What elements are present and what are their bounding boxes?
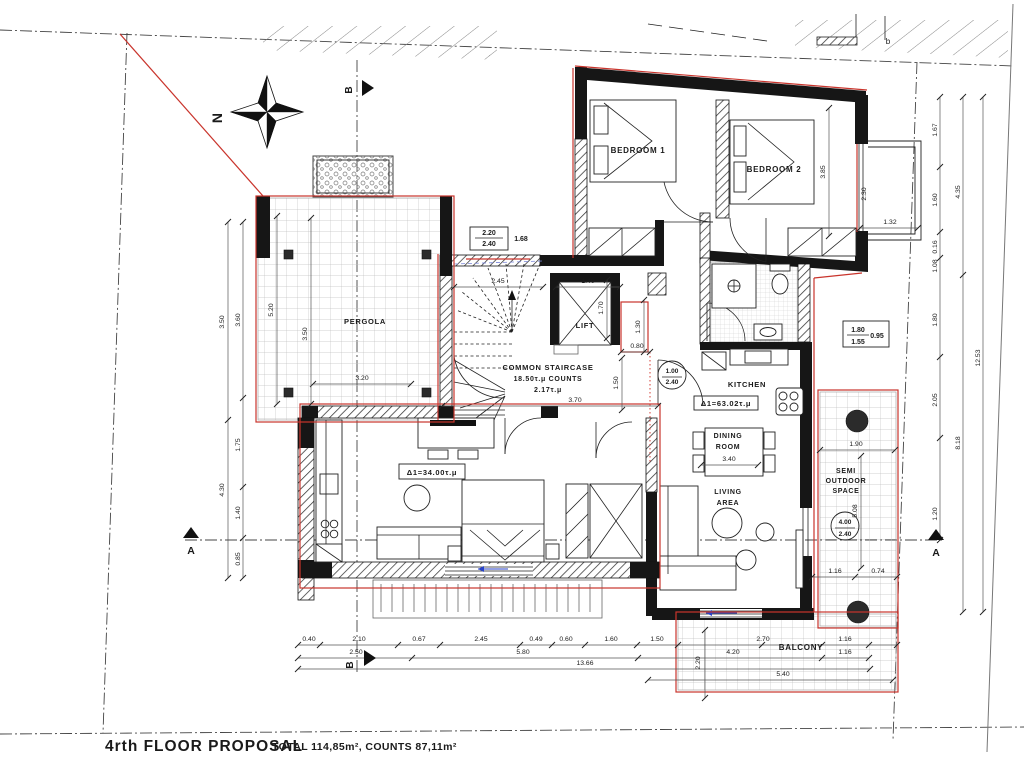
dim-value: 4.35 — [955, 185, 962, 198]
dim-value: 3.40 — [722, 456, 735, 463]
label-apartment1_area: Δ1=63.02τ.μ — [701, 399, 751, 408]
dim-value: 1.70 — [598, 301, 605, 314]
dim-value: 2.20 — [695, 656, 702, 669]
dim-value: 2.45 — [491, 278, 504, 285]
dim-value: 5.20 — [268, 303, 275, 316]
section-b-arrow — [362, 80, 374, 96]
label-lift: LIFT — [576, 321, 595, 330]
label-kitchen: KITCHEN — [728, 380, 766, 389]
balcony-floor — [678, 614, 896, 690]
label-door_hall_w: 1.00 — [666, 368, 679, 375]
dim-value: 1.16 — [838, 649, 851, 656]
dim-value: 5.80 — [516, 649, 529, 656]
dim-value: 0.60 — [559, 636, 572, 643]
dim-value: 0.85 — [235, 552, 242, 565]
stair-winder — [454, 382, 505, 392]
round-table — [404, 485, 430, 511]
studio-living-divider — [646, 492, 657, 616]
living-right-wall — [800, 420, 812, 508]
hob — [776, 388, 803, 415]
dim-value: 3.85 — [820, 165, 827, 178]
pergola-post — [422, 388, 431, 397]
section-b-label: B — [344, 86, 355, 93]
dim-value: 5.08 — [852, 504, 859, 517]
pillow — [734, 162, 746, 192]
north-label: N — [209, 113, 225, 123]
dim-value: 8.18 — [955, 436, 962, 449]
label-win_top_h: 2.40 — [482, 241, 496, 248]
label-semi1: SEMI — [836, 468, 856, 475]
dim-value: 1.60 — [604, 636, 617, 643]
label-bedroom1: BEDROOM 1 — [611, 146, 666, 155]
dim-value: 12.53 — [975, 349, 982, 366]
survey-dashes — [648, 24, 767, 41]
bath-right-wall — [798, 264, 810, 342]
label-semi2: OUTDOOR — [826, 478, 867, 485]
dim-value: 3.60 — [235, 313, 242, 326]
dim-value: 1.16 — [838, 636, 851, 643]
dim-value: 1.32 — [883, 219, 896, 226]
label-staircase2: 18.50τ.μ COUNTS — [514, 376, 583, 383]
stair-top-wall — [540, 255, 662, 266]
sink-counter — [754, 324, 782, 340]
dim-value: 1.08 — [932, 259, 939, 272]
hall-wall — [648, 273, 666, 295]
dim-value: 1.40 — [581, 278, 594, 285]
stair-rail — [454, 356, 504, 398]
nightstand — [448, 546, 461, 561]
label-living1: LIVING — [714, 489, 742, 496]
label-win_top_w: 2.20 — [482, 230, 496, 237]
dim-value: 13.66 — [576, 660, 593, 667]
dim-value: 1.90 — [849, 441, 862, 448]
dim-value: 2.70 — [756, 636, 769, 643]
dim-value: 0.40 — [302, 636, 315, 643]
dim-value: 0.74 — [871, 568, 884, 575]
label-dining1: DINING — [714, 433, 743, 440]
floor-plan-drawing: BEDROOM 1BEDROOM 2LIFTCOMMON STAIRCASE18… — [0, 0, 1024, 762]
sofa-chaise — [660, 556, 736, 590]
label-door_semi_h: 2.40 — [839, 531, 852, 538]
label-dining2: ROOM — [716, 444, 741, 451]
label-win_right_w: 1.80 — [851, 327, 865, 334]
door-arc-studio — [505, 418, 541, 454]
plot-boundary-left — [103, 33, 127, 733]
wall-cap — [302, 562, 332, 578]
dim-value: 2.50 — [349, 649, 362, 656]
bedroom2-right-wall — [855, 95, 868, 144]
studio-shelf — [430, 420, 476, 426]
wc-bowl — [772, 274, 788, 294]
section-a-arrow — [928, 529, 944, 540]
stair-ray — [462, 292, 512, 332]
pergola-floor — [258, 198, 452, 420]
dim-value: 1.40 — [235, 506, 242, 519]
lift-wall — [611, 273, 620, 345]
dim-value: 2.05 — [932, 393, 939, 406]
label-door_hall_h: 2.40 — [666, 379, 679, 386]
bedroom1-left-wall-ins — [575, 139, 587, 258]
tv-unit — [796, 530, 803, 588]
nightstand — [546, 544, 559, 559]
plot-boundary-bottom — [0, 727, 1024, 734]
label-door_semi_w: 4.00 — [839, 519, 852, 526]
floor-plan-sheet: BEDROOM 1BEDROOM 2LIFTCOMMON STAIRCASE18… — [0, 0, 1024, 762]
wall-cap — [541, 406, 558, 418]
label-studio_area: Δ1=34.00τ.μ — [407, 468, 457, 477]
line — [814, 273, 862, 278]
label-bedroom2: BEDROOM 2 — [747, 165, 802, 174]
label-living2: AREA — [717, 500, 740, 507]
dim-value: 3.20 — [355, 375, 368, 382]
dim-value: 1.80 — [932, 313, 939, 326]
bedroom1-left-wall — [575, 67, 587, 139]
chair — [428, 450, 448, 459]
plot-boundary-right — [987, 4, 1013, 752]
stair-left-wall — [440, 266, 452, 418]
label-win_top_len: 1.68 — [514, 236, 528, 243]
setback-line-right — [893, 62, 917, 740]
pergola-post — [284, 250, 293, 259]
stair-ray — [473, 278, 512, 332]
label-semi3: SPACE — [832, 488, 859, 495]
wall-cap — [630, 562, 662, 578]
section-b-arrow — [364, 650, 376, 666]
dim-value: 2.45 — [474, 636, 487, 643]
dim-value: 1.75 — [235, 438, 242, 451]
dim-value: 0.49 — [529, 636, 542, 643]
pergola-corner-wall — [440, 196, 452, 276]
label-staircase3: 2.17τ.μ — [534, 387, 562, 394]
label-staircase1: COMMON STAIRCASE — [502, 363, 593, 372]
chair — [764, 455, 775, 472]
pergola-post — [284, 388, 293, 397]
section-a-arrow — [183, 527, 199, 538]
stair-winder — [454, 360, 505, 390]
dim-value: 0.67 — [412, 636, 425, 643]
bedroom-top-wall — [575, 67, 866, 103]
dim-value: 1.20 — [932, 507, 939, 520]
dim-value: 0.80 — [630, 343, 643, 350]
label-pergola: PERGOLA — [344, 317, 386, 326]
coffee-table — [712, 508, 742, 538]
dim-value: 3.50 — [219, 315, 226, 328]
planter — [313, 156, 393, 197]
door-arc-apartment — [596, 422, 632, 458]
label-win_right_h: 1.55 — [851, 339, 865, 346]
lift-step — [554, 345, 578, 354]
dim-value: 2.10 — [352, 636, 365, 643]
wc-tank — [770, 264, 790, 271]
dim-value: 5.40 — [776, 671, 789, 678]
studio-slider-gap — [445, 564, 533, 576]
pillow — [594, 146, 608, 174]
stair-ray — [512, 264, 540, 332]
studio-top-wall — [302, 406, 452, 418]
pergola-post — [422, 250, 431, 259]
wall-cap — [302, 406, 318, 418]
sheet-subtitle: TOTAL 114,85m², COUNTS 87,11m² — [272, 741, 457, 753]
label-win_right_len: 0.95 — [870, 333, 884, 340]
chair — [764, 432, 775, 449]
bath-left-wall — [700, 258, 710, 344]
section-a-label: A — [187, 545, 195, 557]
pillow — [594, 106, 608, 134]
pillow — [734, 126, 746, 156]
dim-value: 0.16 — [932, 240, 939, 253]
dim-value: 3.50 — [302, 327, 309, 340]
bedroom-partition — [716, 100, 729, 218]
dim-value: 3.70 — [568, 397, 581, 404]
chair — [693, 432, 704, 449]
section-b-label: B — [345, 661, 356, 668]
stair-arrow-head — [508, 290, 516, 300]
stair-winder — [494, 396, 505, 420]
studio-bed — [462, 480, 544, 562]
side-table — [736, 550, 756, 570]
dim-value: 1.16 — [828, 568, 841, 575]
pergola-corner-wall — [256, 196, 270, 258]
dim-value: 1.67 — [932, 123, 939, 136]
dim-value: 1.60 — [932, 193, 939, 206]
label-balcony: BALCONY — [779, 643, 823, 652]
dim-value: 4.20 — [726, 649, 739, 656]
dim-value: 1.30 — [635, 320, 642, 333]
dim-value: 2.30 — [861, 187, 868, 200]
section-a-label: A — [932, 547, 940, 559]
neighbor-hatch-left — [263, 26, 497, 60]
lift-wall — [550, 273, 559, 345]
chair — [458, 450, 478, 459]
site-wall-mark — [817, 37, 857, 45]
plot-label: b — [886, 37, 891, 46]
dim-value: 1.50 — [613, 376, 620, 389]
column — [846, 410, 868, 432]
dim-value: 1.50 — [650, 636, 663, 643]
studio-living-divider — [646, 418, 657, 492]
dim-value: 4.30 — [219, 483, 226, 496]
side-table — [756, 523, 774, 541]
